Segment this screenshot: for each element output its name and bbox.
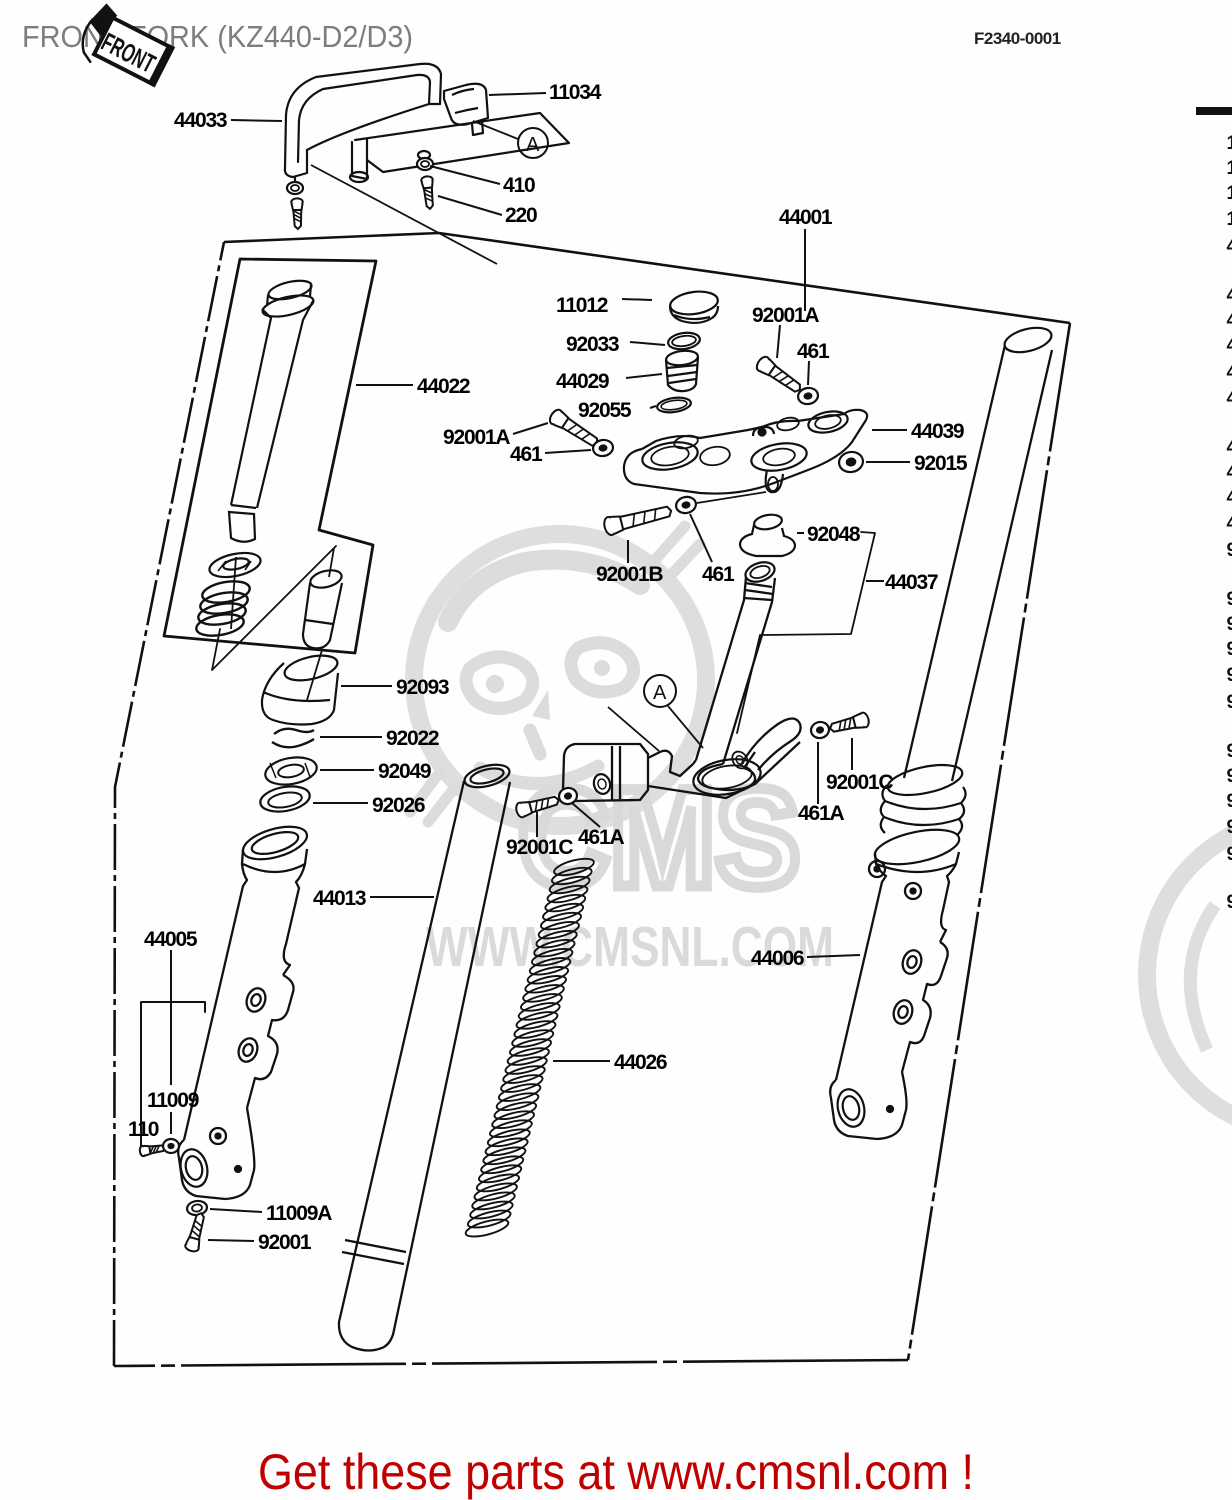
- svg-text:1: 1: [1227, 158, 1232, 179]
- svg-text:9: 9: [1227, 766, 1232, 787]
- svg-text:1: 1: [1227, 209, 1232, 230]
- svg-text:4: 4: [1227, 437, 1232, 458]
- svg-text:9: 9: [1227, 817, 1232, 838]
- svg-text:92022: 92022: [386, 727, 439, 750]
- svg-text:44026: 44026: [614, 1051, 667, 1074]
- svg-text:461: 461: [510, 443, 543, 466]
- svg-text:461A: 461A: [798, 802, 844, 825]
- svg-text:92001: 92001: [258, 1231, 312, 1254]
- svg-text:92001A: 92001A: [752, 304, 819, 327]
- svg-text:44006: 44006: [751, 947, 804, 970]
- svg-text:44001: 44001: [779, 206, 833, 229]
- svg-text:FRONT FORK (KZ440-D2/D3): FRONT FORK (KZ440-D2/D3): [22, 19, 413, 54]
- svg-text:11009A: 11009A: [266, 1202, 332, 1225]
- svg-text:4: 4: [1227, 487, 1232, 508]
- svg-text:9: 9: [1227, 589, 1232, 610]
- svg-text:92049: 92049: [378, 760, 431, 783]
- svg-text:44005: 44005: [144, 928, 198, 951]
- svg-text:4: 4: [1227, 285, 1232, 306]
- svg-text:9: 9: [1227, 665, 1232, 686]
- svg-text:A: A: [526, 134, 540, 156]
- svg-text:9: 9: [1227, 639, 1232, 660]
- svg-text:110: 110: [128, 1118, 159, 1141]
- svg-text:44039: 44039: [911, 420, 964, 443]
- svg-text:1: 1: [1227, 133, 1232, 154]
- svg-text:92093: 92093: [396, 676, 449, 699]
- svg-text:9: 9: [1227, 791, 1232, 812]
- svg-text:92001B: 92001B: [596, 563, 663, 586]
- svg-text:Get these parts at www.cmsnl.c: Get these parts at www.cmsnl.com !: [258, 1444, 974, 1500]
- svg-text:44022: 44022: [417, 375, 470, 398]
- svg-text:461: 461: [797, 340, 830, 363]
- svg-text:A: A: [653, 682, 667, 704]
- svg-text:9: 9: [1227, 844, 1232, 865]
- svg-text:4: 4: [1227, 310, 1232, 331]
- svg-text:4: 4: [1227, 236, 1232, 257]
- svg-text:4: 4: [1227, 513, 1232, 534]
- svg-text:4: 4: [1227, 335, 1232, 356]
- svg-text:92055: 92055: [578, 399, 632, 422]
- svg-text:44033: 44033: [174, 109, 227, 132]
- svg-text:11012: 11012: [556, 294, 608, 317]
- svg-text:4: 4: [1227, 462, 1232, 483]
- svg-text:92048: 92048: [807, 523, 861, 546]
- svg-text:1: 1: [1227, 183, 1232, 204]
- svg-text:4: 4: [1227, 388, 1232, 409]
- svg-text:9: 9: [1227, 692, 1232, 713]
- svg-text:44013: 44013: [313, 887, 366, 910]
- svg-text:9: 9: [1227, 614, 1232, 635]
- svg-text:11009: 11009: [147, 1089, 199, 1112]
- svg-text:92001C: 92001C: [506, 836, 573, 859]
- svg-text:92001A: 92001A: [443, 426, 510, 449]
- svg-text:4: 4: [1227, 362, 1232, 383]
- svg-text:F2340-0001: F2340-0001: [974, 29, 1061, 48]
- svg-text:44037: 44037: [885, 571, 938, 594]
- svg-text:9: 9: [1227, 892, 1232, 913]
- svg-text:9: 9: [1227, 741, 1232, 762]
- svg-text:92026: 92026: [372, 794, 425, 817]
- svg-text:220: 220: [505, 204, 537, 227]
- svg-text:461: 461: [702, 563, 735, 586]
- svg-text:44029: 44029: [556, 370, 609, 393]
- svg-text:92033: 92033: [566, 333, 619, 356]
- svg-text:410: 410: [503, 174, 535, 197]
- svg-text:461A: 461A: [578, 826, 624, 849]
- svg-text:92015: 92015: [914, 452, 968, 475]
- svg-text:9: 9: [1227, 540, 1232, 561]
- svg-text:11034: 11034: [549, 81, 602, 104]
